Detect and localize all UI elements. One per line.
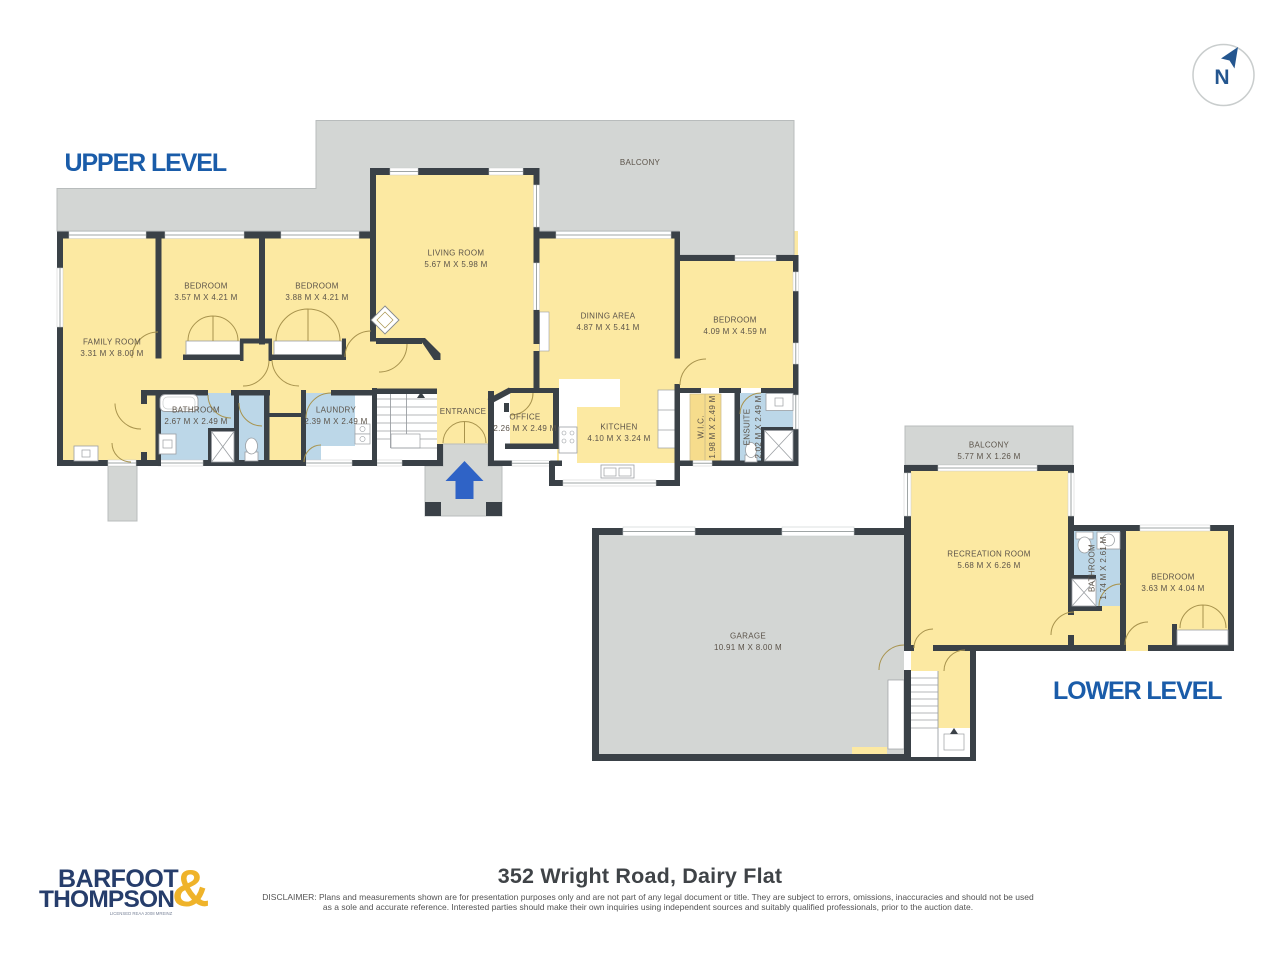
svg-text:as a sole and accurate referen: as a sole and accurate reference. Intere…	[323, 902, 973, 912]
svg-text:DISCLAIMER: Plans and measurem: DISCLAIMER: Plans and measurements shown…	[262, 892, 1034, 902]
svg-text:ENTRANCE: ENTRANCE	[440, 407, 486, 416]
svg-text:LICENSED REAA 2008 MREINZ: LICENSED REAA 2008 MREINZ	[110, 911, 173, 916]
svg-text:1.74 M X 2.61 M: 1.74 M X 2.61 M	[1099, 536, 1108, 599]
svg-text:LOWER LEVEL: LOWER LEVEL	[1053, 677, 1222, 705]
svg-text:1.98 M X 2.49 M: 1.98 M X 2.49 M	[708, 395, 717, 458]
svg-text:BATHROOM: BATHROOM	[1088, 544, 1097, 592]
svg-text:THOMPSON: THOMPSON	[39, 886, 174, 913]
svg-text:2.02 M X 2.49 M: 2.02 M X 2.49 M	[754, 395, 763, 458]
svg-text:W.I.C.: W.I.C.	[697, 415, 706, 439]
svg-text:UPPER LEVEL: UPPER LEVEL	[65, 149, 227, 177]
svg-text:ENSUITE: ENSUITE	[743, 409, 752, 446]
svg-text:352 Wright Road, Dairy Flat: 352 Wright Road, Dairy Flat	[498, 864, 783, 888]
svg-text:N: N	[1214, 66, 1229, 89]
svg-text:BALCONY: BALCONY	[620, 158, 661, 167]
svg-text:&: &	[172, 860, 210, 918]
